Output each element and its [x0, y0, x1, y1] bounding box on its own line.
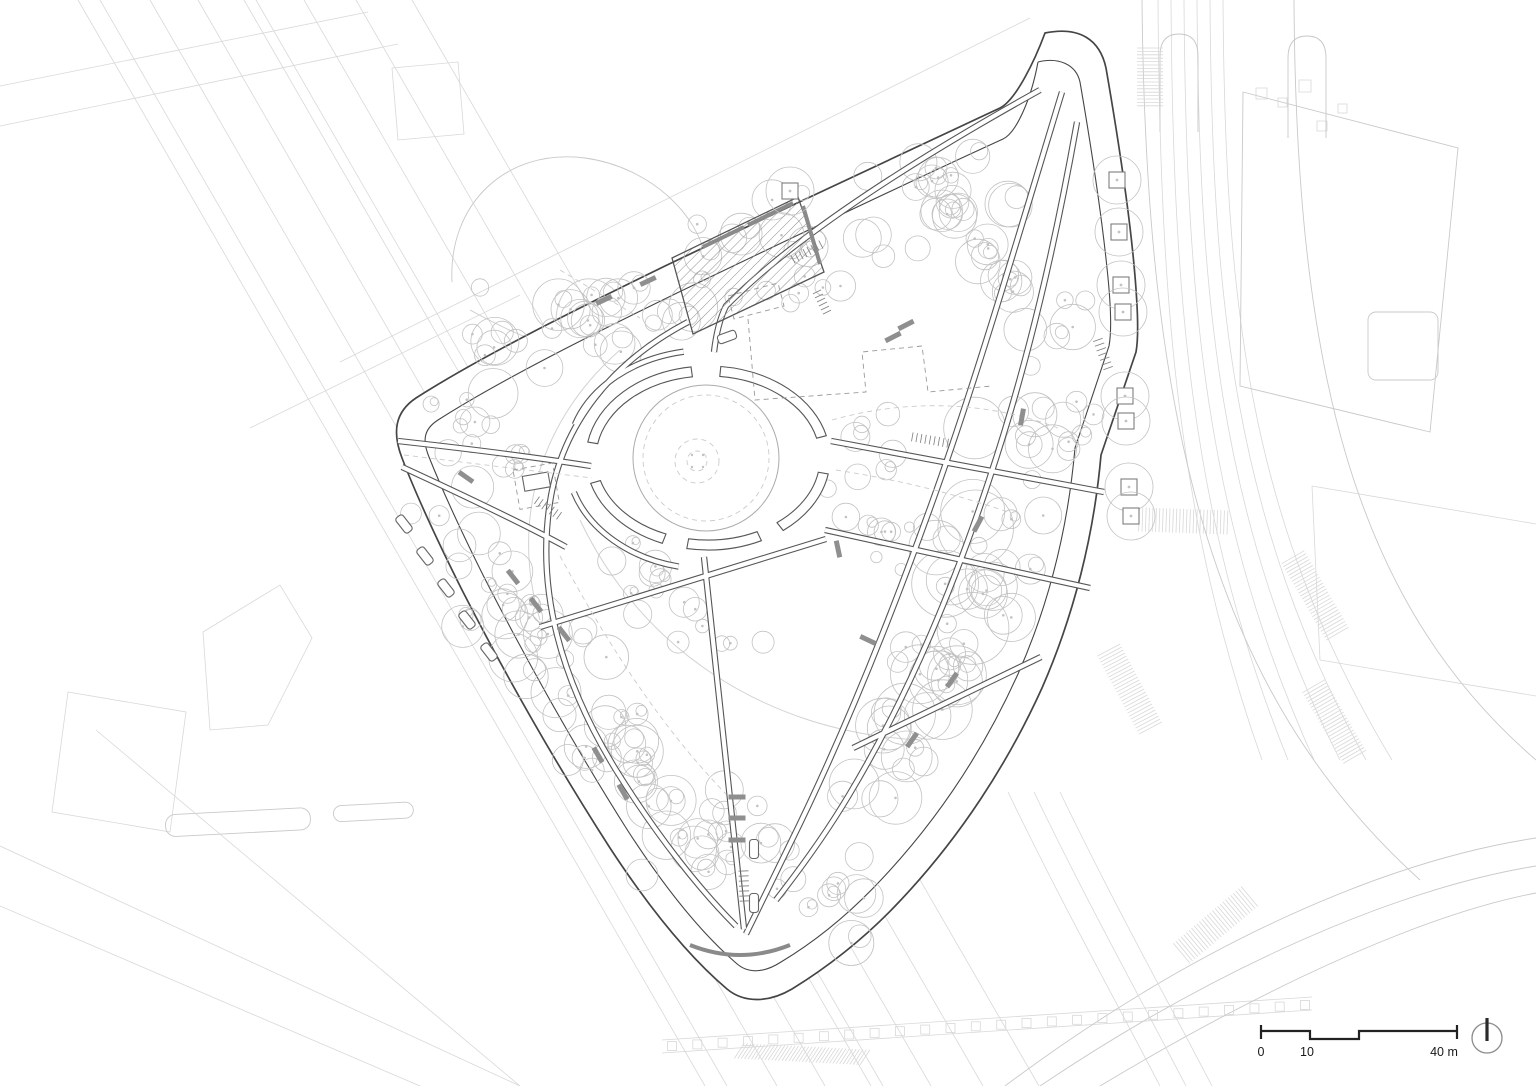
median-strip-1: [165, 807, 311, 837]
plaza-center-dot-1: [691, 454, 693, 456]
court-top-right: [1368, 312, 1438, 380]
site-plan: 0 10 40 m: [0, 0, 1536, 1086]
colonnade-lines: [662, 997, 1312, 1053]
median-strip-2: [333, 802, 414, 822]
colonnade-column: [668, 1042, 677, 1051]
colonnade-column: [1047, 1017, 1056, 1026]
bench-seat: [416, 546, 435, 567]
small-blocks-top-right: [1256, 80, 1347, 131]
scale-label-forty: 40 m: [1430, 1045, 1458, 1059]
streets-bottom-left: [0, 730, 520, 1086]
colonnade-column: [971, 1022, 980, 1031]
tree: [688, 215, 706, 233]
colonnade-column: [895, 1027, 904, 1036]
bench: [729, 816, 746, 821]
colonnade-column: [1199, 1007, 1208, 1016]
tram-fan-south: [1008, 792, 1212, 1086]
colonnade-column: [870, 1028, 879, 1037]
colonnade-layer: [668, 1001, 1310, 1051]
pedestrian-crossing: [1097, 644, 1162, 734]
building-mid-right: [1312, 486, 1536, 696]
pedestrian-crossing: [1282, 551, 1349, 641]
colonnade-column: [819, 1032, 828, 1041]
colonnade-column: [1301, 1001, 1310, 1010]
tram-lines: [1158, 0, 1392, 760]
scale-bar: 0 10 40 m: [1258, 1025, 1458, 1059]
plaza-center-dot-3: [691, 466, 693, 468]
colonnade-column: [718, 1038, 727, 1047]
scale-bar-line: [1261, 1025, 1457, 1039]
tree-planter: [1105, 463, 1153, 511]
colonnade-column: [845, 1030, 854, 1039]
colonnade-column: [921, 1025, 930, 1034]
plaza-center-dot-2: [702, 454, 704, 456]
colonnade-column: [1073, 1015, 1082, 1024]
building-top-right: [1240, 92, 1458, 432]
pedestrian-crossing: [1303, 680, 1366, 764]
tree: [471, 279, 488, 296]
bench: [729, 838, 746, 843]
plaza-center-dot-4: [702, 466, 704, 468]
north-arrow-icon: [1472, 1018, 1502, 1053]
tree-planter: [1107, 492, 1155, 540]
colonnade-column: [693, 1040, 702, 1049]
colonnade-column: [997, 1020, 1006, 1029]
bench-seat: [750, 840, 759, 859]
bench-seat: [750, 894, 759, 913]
colonnade-column: [1022, 1019, 1031, 1028]
colonnade-column: [769, 1035, 778, 1044]
colonnade-column: [1275, 1002, 1284, 1011]
bench: [729, 795, 746, 800]
scale-label-zero: 0: [1258, 1045, 1265, 1059]
scale-label-ten: 10: [1300, 1045, 1314, 1059]
colonnade-column: [1250, 1004, 1259, 1013]
road-edges-right: [1142, 0, 1536, 880]
